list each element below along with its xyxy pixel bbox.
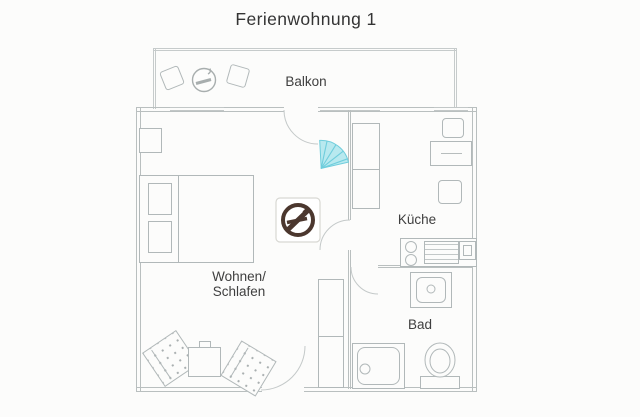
no-smoking-icon	[276, 198, 320, 242]
door-arc-balcony	[284, 110, 318, 144]
stove-burner	[406, 255, 417, 266]
floor-plan-canvas: Ferienwohnung 1	[0, 0, 640, 417]
toilet-bowl	[425, 343, 455, 377]
room-label-bathroom: Bad	[408, 317, 432, 332]
door-arc-bathroom	[351, 267, 378, 294]
room-label-living-line1: Wohnen/	[212, 269, 266, 284]
washbasin-drain	[427, 285, 435, 293]
shower-drain	[360, 364, 370, 374]
plan-overlay	[0, 0, 640, 417]
room-label-living: Wohnen/ Schlafen	[212, 269, 266, 299]
cyan-fan-marker	[317, 137, 349, 169]
room-label-living-line2: Schlafen	[212, 284, 266, 299]
door-arc-kitchen	[320, 220, 350, 250]
room-label-kitchen: Küche	[398, 212, 436, 227]
door-arc-entry	[261, 346, 305, 390]
smoking-allowed-icon	[193, 69, 216, 92]
room-label-balcony: Balkon	[285, 74, 326, 89]
stove-burner	[406, 242, 417, 253]
